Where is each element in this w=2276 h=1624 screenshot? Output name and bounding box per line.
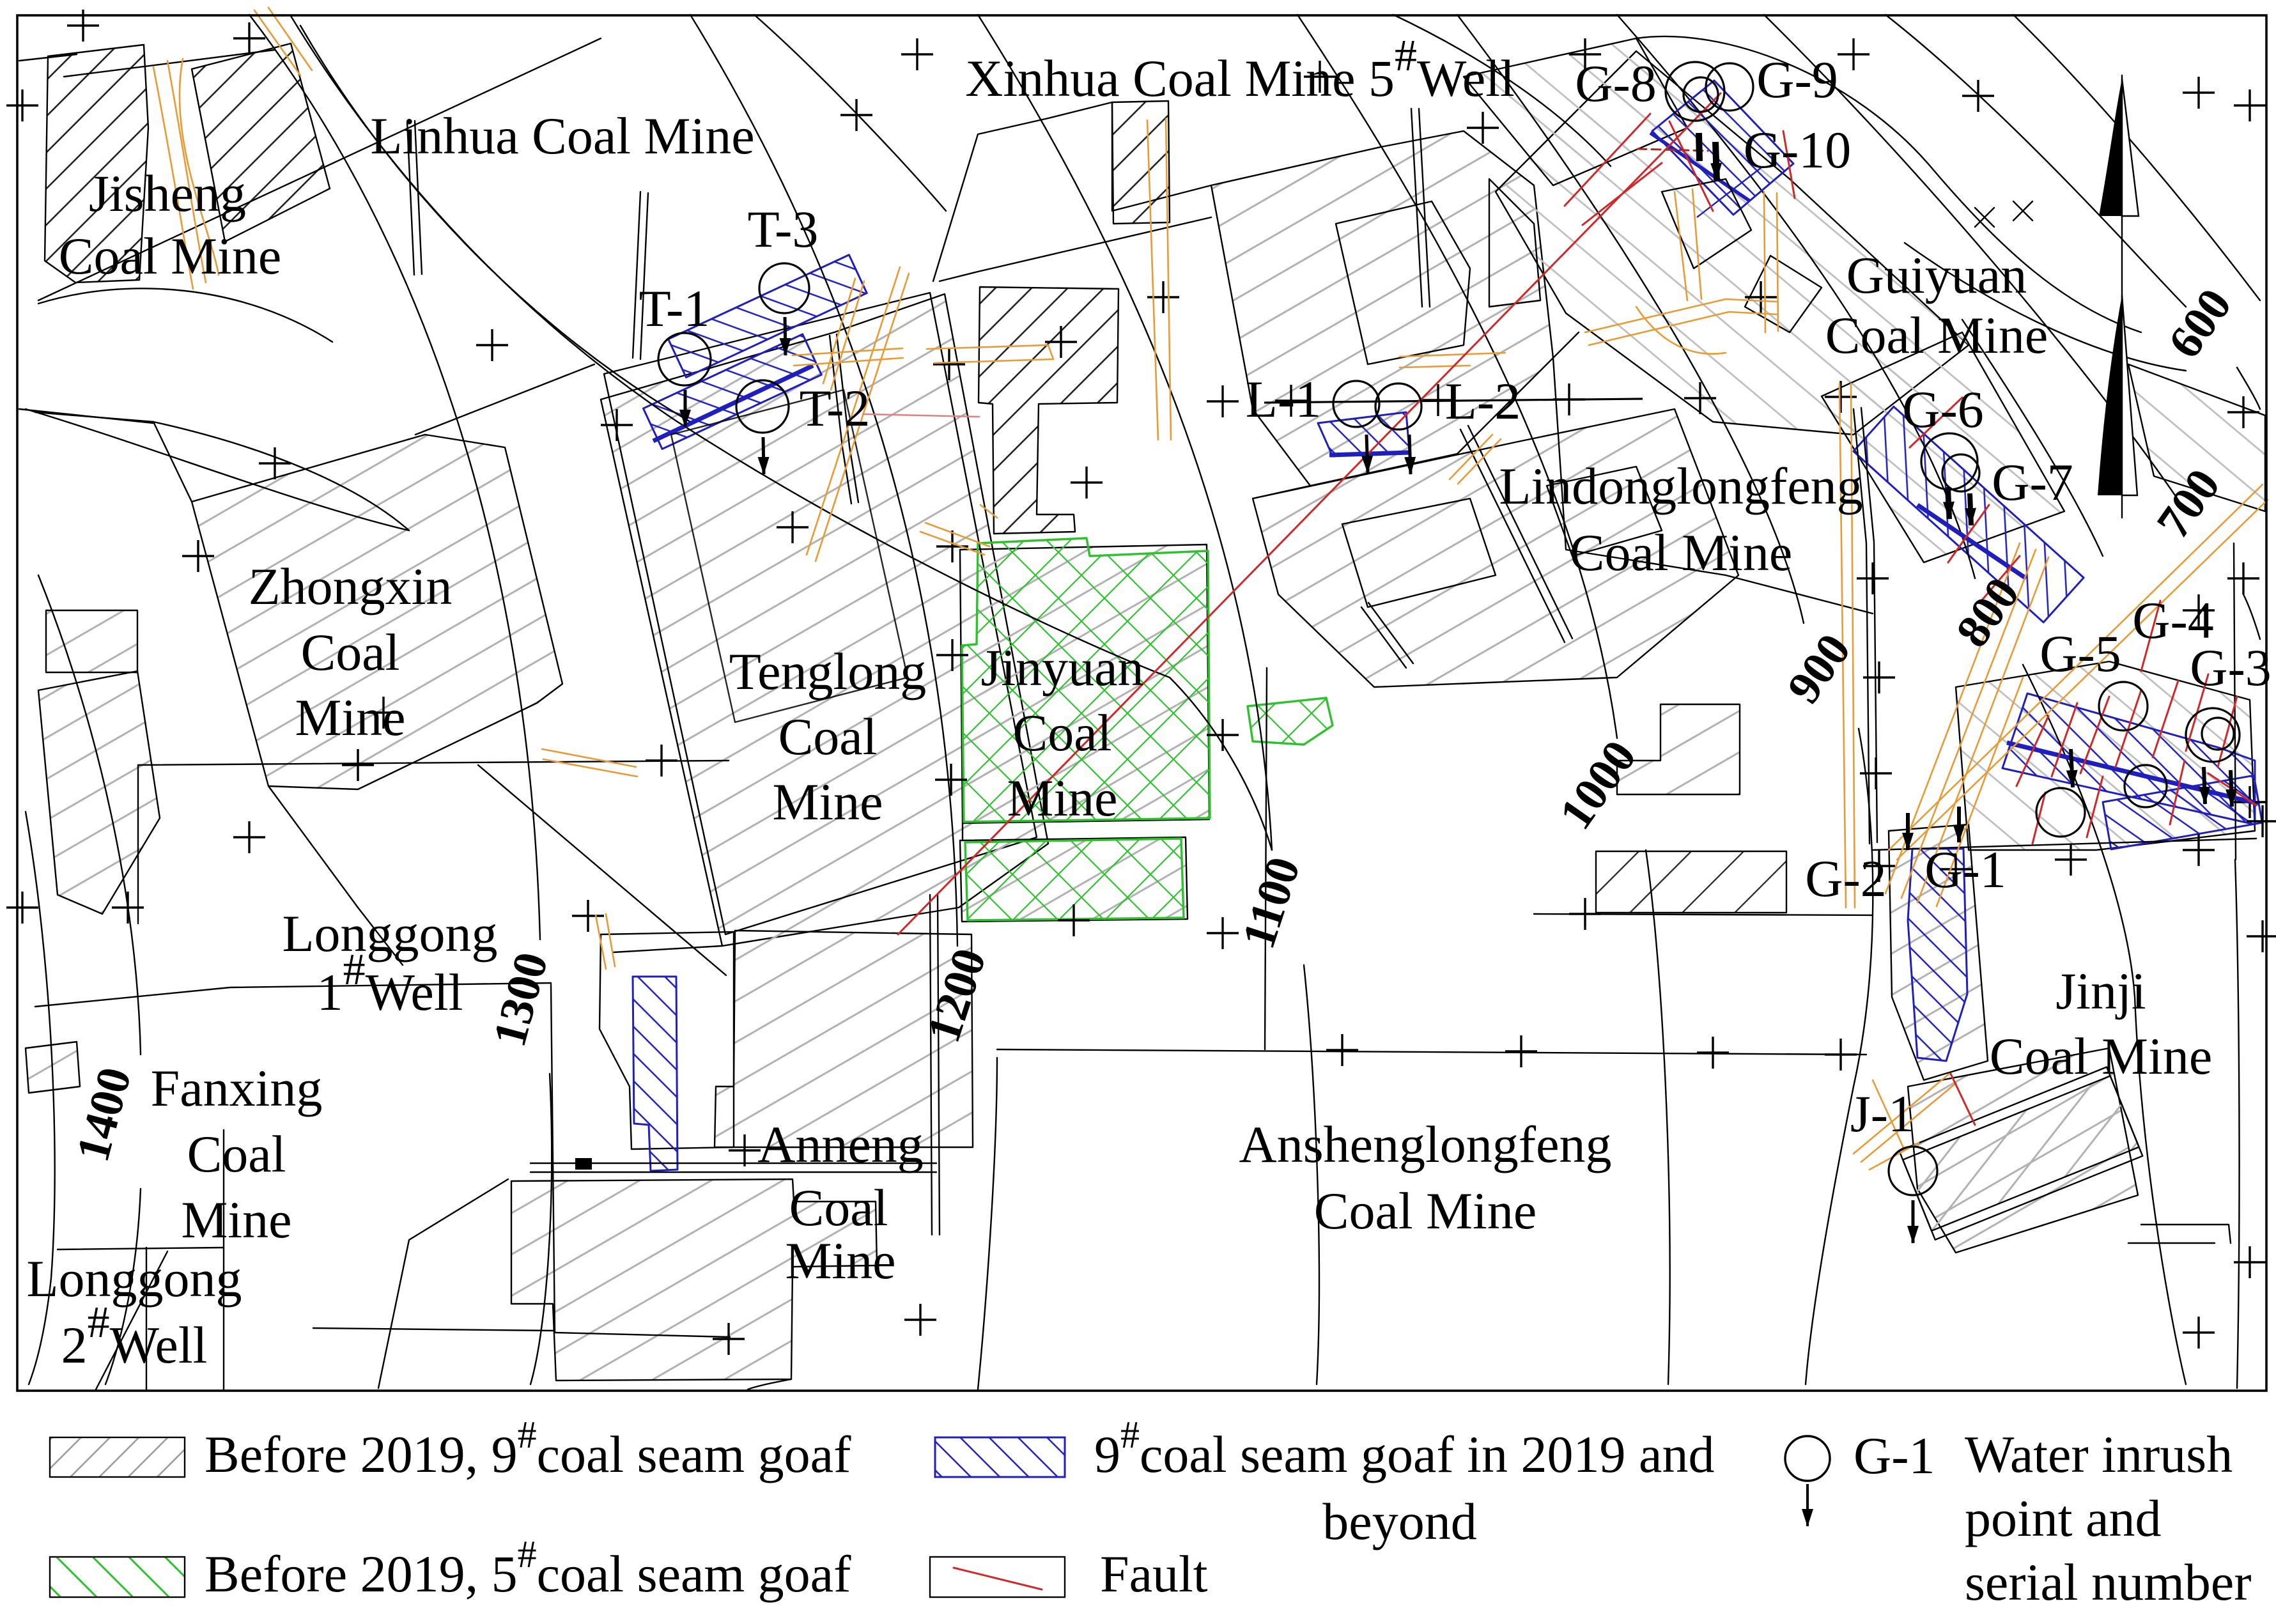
- svg-text:Jinyuan: Jinyuan: [980, 638, 1143, 697]
- svg-text:Longgong: Longgong: [26, 1249, 242, 1308]
- svg-text:G-9: G-9: [1756, 50, 1838, 109]
- svg-text:Mine: Mine: [181, 1191, 291, 1249]
- svg-text:Coal: Coal: [789, 1179, 888, 1237]
- svg-text:Mine: Mine: [772, 773, 883, 831]
- svg-text:Anneng: Anneng: [757, 1115, 924, 1173]
- svg-text:Coal Mine: Coal Mine: [1314, 1182, 1537, 1240]
- svg-text:beyond: beyond: [1322, 1492, 1476, 1551]
- svg-text:Mine: Mine: [295, 688, 405, 746]
- svg-text:Tenglong: Tenglong: [729, 642, 927, 700]
- svg-text:Zhongxin: Zhongxin: [249, 557, 453, 615]
- svg-text:Coal: Coal: [301, 623, 400, 681]
- svg-text:Jisheng: Jisheng: [89, 164, 246, 222]
- svg-text:Fault: Fault: [1100, 1545, 1208, 1603]
- svg-text:T-3: T-3: [748, 200, 819, 258]
- svg-text:Coal: Coal: [187, 1125, 286, 1183]
- svg-text:Coal Mine: Coal Mine: [1570, 523, 1792, 582]
- svg-text:Lindonglongfeng: Lindonglongfeng: [1499, 457, 1862, 515]
- svg-text:point and: point and: [1965, 1489, 2161, 1547]
- svg-text:G-6: G-6: [1902, 380, 1984, 438]
- svg-text:Mine: Mine: [785, 1232, 895, 1290]
- svg-text:Guiyuan: Guiyuan: [1846, 246, 2027, 304]
- svg-text:T-1: T-1: [639, 279, 710, 337]
- svg-text:Coal Mine: Coal Mine: [1825, 306, 2048, 364]
- svg-text:Linhua Coal Mine: Linhua Coal Mine: [370, 107, 754, 165]
- svg-text:G-1: G-1: [1854, 1427, 1935, 1485]
- svg-text:serial number: serial number: [1965, 1553, 2252, 1611]
- svg-text:Jinji: Jinji: [2055, 962, 2146, 1020]
- svg-text:Water inrush: Water inrush: [1965, 1425, 2233, 1483]
- svg-text:L-1: L-1: [1246, 370, 1321, 428]
- svg-text:G-1: G-1: [1924, 840, 2006, 899]
- svg-text:G-7: G-7: [1992, 453, 2073, 511]
- svg-text:Longgong: Longgong: [282, 904, 497, 963]
- svg-text:Mine: Mine: [1007, 769, 1117, 827]
- svg-text:G-8: G-8: [1575, 54, 1657, 112]
- svg-text:Coal: Coal: [1013, 704, 1112, 762]
- svg-text:Coal Mine: Coal Mine: [1990, 1027, 2212, 1085]
- svg-text:G-10: G-10: [1744, 121, 1852, 179]
- svg-text:Anshenglongfeng: Anshenglongfeng: [1239, 1115, 1611, 1173]
- svg-text:G-2: G-2: [1805, 849, 1887, 908]
- svg-text:G-5: G-5: [2040, 624, 2121, 683]
- svg-text:G-3: G-3: [2190, 638, 2272, 697]
- svg-text:J-1: J-1: [1850, 1085, 1914, 1143]
- svg-text:Fanxing: Fanxing: [151, 1059, 323, 1117]
- svg-text:Coal: Coal: [778, 708, 878, 766]
- svg-text:L-2: L-2: [1445, 372, 1521, 430]
- svg-text:T-2: T-2: [800, 379, 871, 437]
- svg-text:Coal Mine: Coal Mine: [59, 227, 281, 285]
